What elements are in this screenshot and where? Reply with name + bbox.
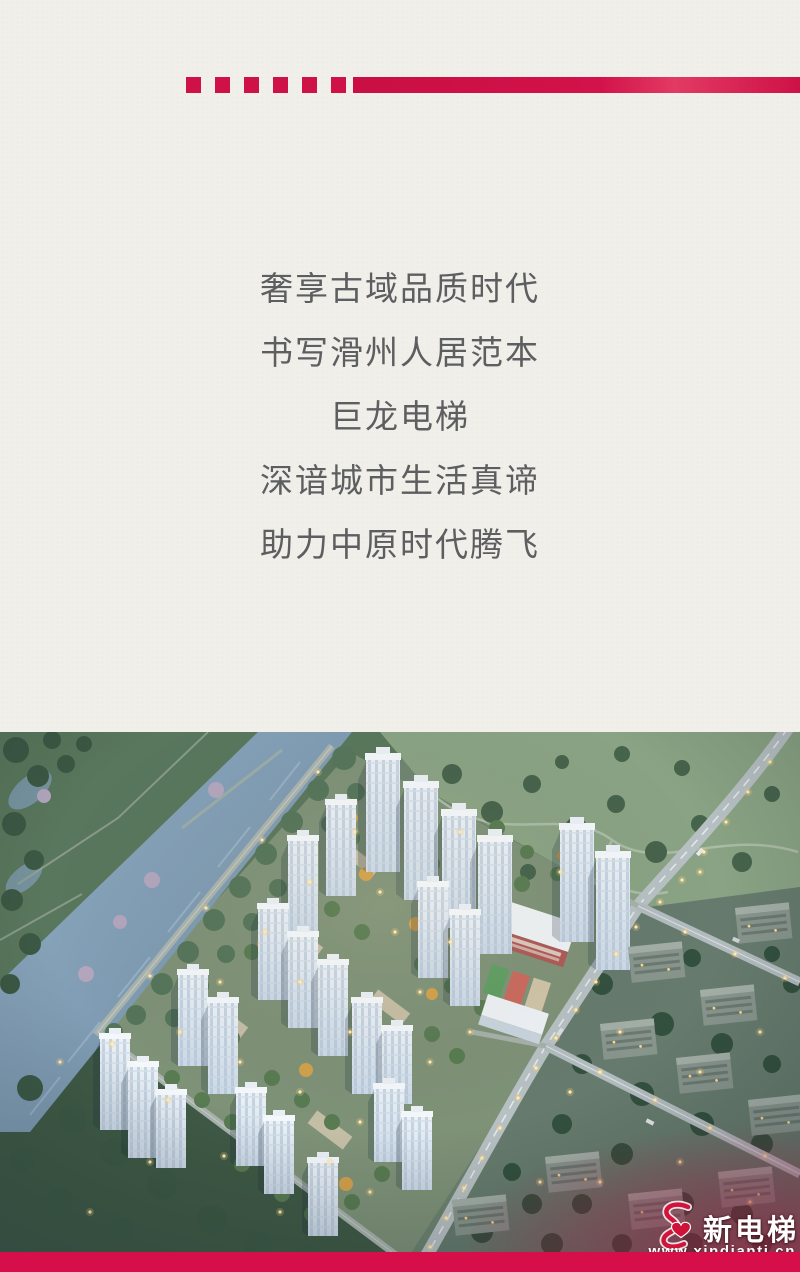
slogan-block: 奢享古域品质时代 书写滑州人居范本 巨龙电梯 深谙城市生活真谛 助力中原时代腾飞: [0, 257, 800, 577]
top-ornament-bar: [353, 77, 800, 93]
slogan-line: 书写滑州人居范本: [0, 321, 800, 385]
ornament-square: [244, 77, 259, 93]
promo-article-page: 奢享古域品质时代 书写滑州人居范本 巨龙电梯 深谙城市生活真谛 助力中原时代腾飞: [0, 0, 800, 1272]
ornament-square: [273, 77, 288, 93]
slogan-line: 助力中原时代腾飞: [0, 513, 800, 577]
ornament-square: [215, 77, 230, 93]
ornament-square: [186, 77, 201, 93]
slogan-line: 深谙城市生活真谛: [0, 449, 800, 513]
aerial-render-scene: [0, 732, 800, 1272]
slogan-line: 奢享古域品质时代: [0, 257, 800, 321]
aerial-render-photo: [0, 732, 800, 1272]
top-ornament-squares: [186, 77, 346, 93]
bottom-red-strip: [0, 1252, 800, 1272]
dusk-vignette: [0, 732, 800, 1272]
ornament-square: [302, 77, 317, 93]
slogan-line: 巨龙电梯: [0, 385, 800, 449]
ornament-square: [331, 77, 346, 93]
